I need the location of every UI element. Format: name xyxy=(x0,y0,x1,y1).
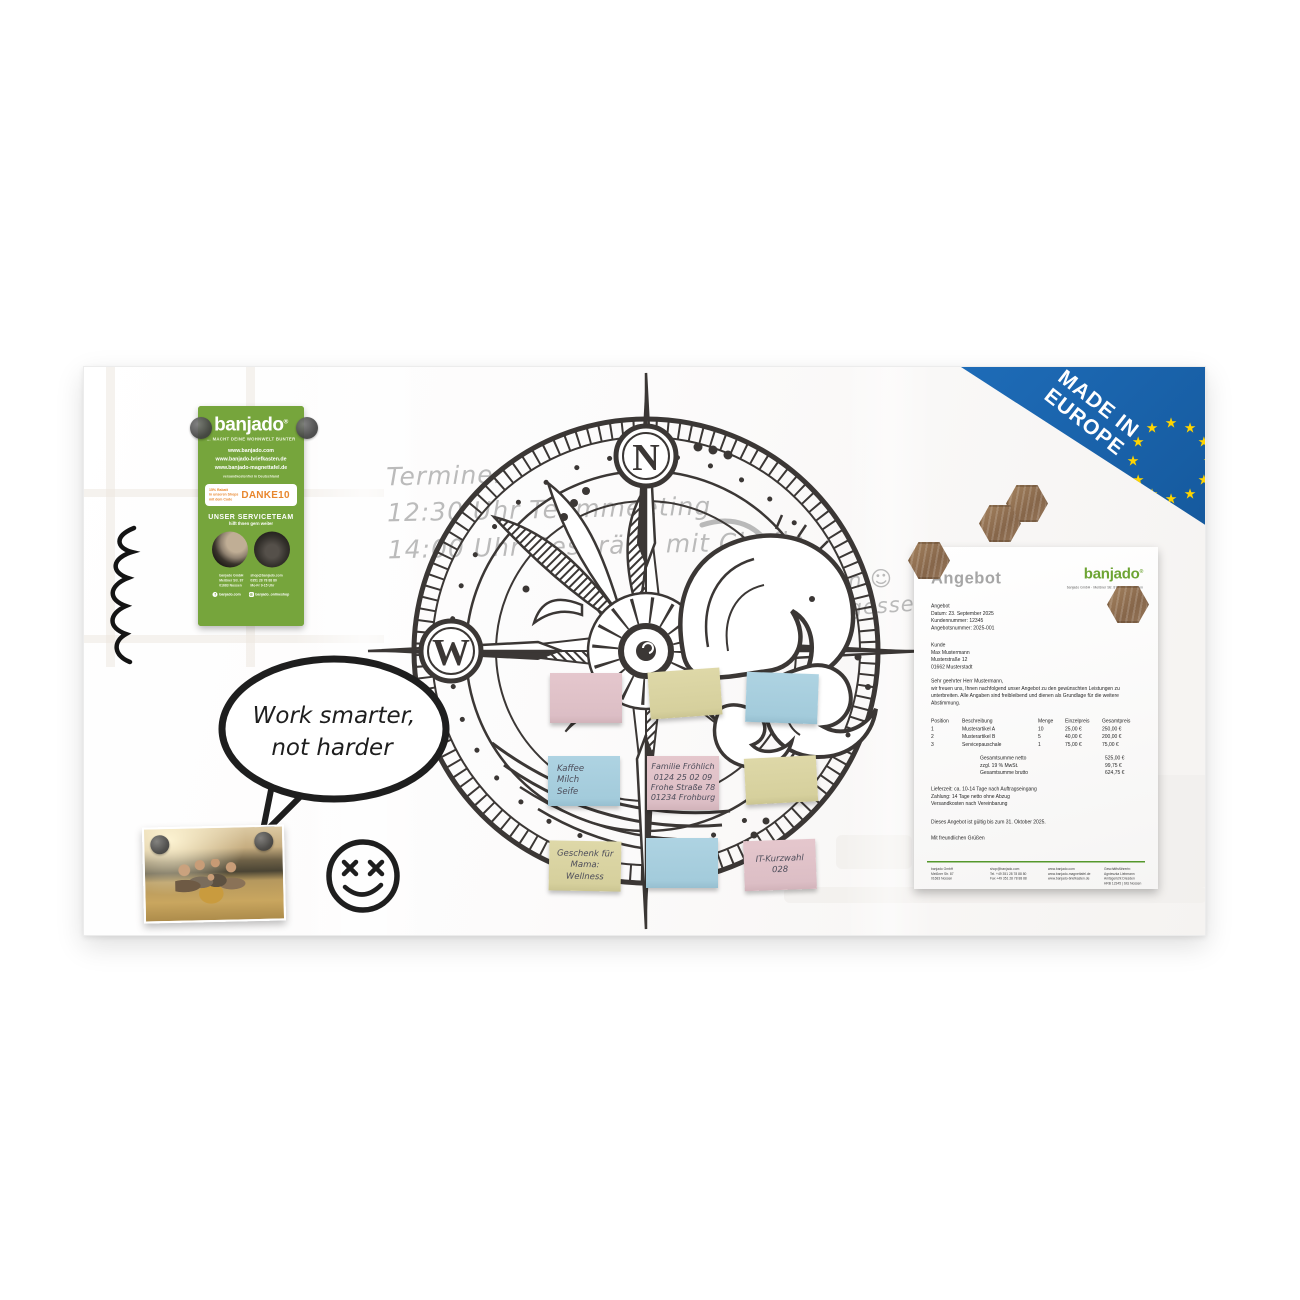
sticky-note: Familie Fröhlich0124 25 02 09 Frohe Stra… xyxy=(647,756,719,810)
discount-box: 15% Rabatt in unseren Shops mit dem Code… xyxy=(205,484,297,506)
product-photo-stage: Termine: 12:30 Uhr Teammeeting 14:00 Uhr… xyxy=(0,0,1300,1300)
eu-star-icon: ★ xyxy=(1198,434,1206,451)
discount-code: DANKE10 xyxy=(241,489,289,501)
speech-bubble: Work smarter, not harder xyxy=(214,655,459,840)
flyer-tagline: … MACHT DEINE WOHNWELT BUNTER xyxy=(198,437,304,442)
sticky-note xyxy=(744,755,818,805)
sticky-note: IT-Kurzwahl028 xyxy=(743,839,817,891)
flyer-url: www.banjado.com xyxy=(198,447,304,455)
round-magnet xyxy=(150,835,169,854)
document-customer: KundeMax Mustermann Musterstraße 1201662… xyxy=(931,642,972,671)
document-validity: Dieses Angebot ist gültig bis zum 31. Ok… xyxy=(931,819,1046,826)
service-team-dog-photo xyxy=(212,531,248,567)
made-in-europe-text: MADE IN EUROPE xyxy=(1018,366,1164,478)
facebook-handle: fbanjado.com xyxy=(213,592,241,597)
flyer-service-subtitle: hilft Ihnen gern weiter xyxy=(198,521,304,526)
document-closing: Mit freundlichen Grüßen xyxy=(931,835,985,842)
registered-mark: ® xyxy=(284,418,288,426)
document-terms: Lieferzeit: ca. 10-14 Tage nach Auftrags… xyxy=(931,786,1037,808)
flyer-service-title: UNSER SERVICETEAM xyxy=(198,512,304,520)
speech-bubble-line: Work smarter, xyxy=(253,703,416,729)
instagram-icon: ◎ xyxy=(249,592,254,597)
document-meta: AngebotDatum: 23. September 2025 Kundenn… xyxy=(931,603,994,632)
squiggle-doodle xyxy=(96,522,156,672)
flyer-contact-block: shop@banjado.com 0351 28 78 88 80 Mo-Fr … xyxy=(250,573,282,588)
compass-north-letter: N xyxy=(632,437,659,479)
flyer-logo: banjado® xyxy=(198,414,304,436)
document-footer: banjado GmbHMeißner Str. 8701683 Nossen … xyxy=(931,867,1146,886)
discount-line: mit dem Code xyxy=(209,497,238,502)
speech-bubble-line: not harder xyxy=(271,735,394,761)
eu-star-icon: ★ xyxy=(1146,420,1159,437)
banjado-flyer: banjado® … MACHT DEINE WOHNWELT BUNTER w… xyxy=(198,406,304,626)
eu-star-icon: ★ xyxy=(1146,485,1159,502)
eu-star-icon: ★ xyxy=(1132,472,1145,489)
sticky-note xyxy=(745,672,819,724)
eu-star-icon: ★ xyxy=(1203,453,1206,470)
flyer-shipping-note: versandkostenfrei in Deutschland xyxy=(198,475,304,479)
service-team-dog-photo xyxy=(254,531,290,567)
eu-star-icon: ★ xyxy=(1165,491,1178,508)
facebook-icon: f xyxy=(213,592,218,597)
eu-star-icon: ★ xyxy=(1184,420,1197,437)
document-footer-rule xyxy=(927,861,1145,863)
round-magnet xyxy=(296,417,318,439)
document-intro: Sehr geehrter Herr Mustermann, wir freue… xyxy=(931,678,1147,707)
family-silhouettes xyxy=(175,858,253,908)
flyer-url: www.banjado-magnettafel.de xyxy=(198,463,304,471)
compass-north-badge: N xyxy=(616,426,676,486)
sticky-note xyxy=(647,668,722,720)
sticky-note xyxy=(646,838,718,888)
family-photo xyxy=(142,824,286,923)
smiley-doodle xyxy=(317,833,409,919)
sticky-note xyxy=(550,673,622,723)
document-totals: Gesamtsumme netto525,00 € zzgl. 19 % MwS… xyxy=(980,755,1146,777)
eu-star-icon: ★ xyxy=(1132,434,1145,451)
flyer-url: www.banjado-briefkasten.de xyxy=(198,455,304,463)
eu-star-icon: ★ xyxy=(1198,472,1206,489)
sticky-note: KaffeeMilchSeife xyxy=(548,756,620,806)
document-items-table: PositionBeschreibung MengeEinzelpreis Ge… xyxy=(931,718,1146,749)
sticky-note: Geschenk fürMama:Wellness xyxy=(549,840,622,891)
round-magnet xyxy=(190,417,212,439)
magnet-board: Termine: 12:30 Uhr Teammeeting 14:00 Uhr… xyxy=(83,366,1206,936)
eu-star-icon: ★ xyxy=(1184,485,1197,502)
eu-star-icon: ★ xyxy=(1127,453,1140,470)
round-magnet xyxy=(254,832,273,851)
eu-star-icon: ★ xyxy=(1165,415,1178,432)
flyer-address-block: banjado GmbH Meißner Str. 87 01683 Nosse… xyxy=(219,573,243,588)
instagram-handle: ◎banjado_onlineshop xyxy=(249,592,290,597)
